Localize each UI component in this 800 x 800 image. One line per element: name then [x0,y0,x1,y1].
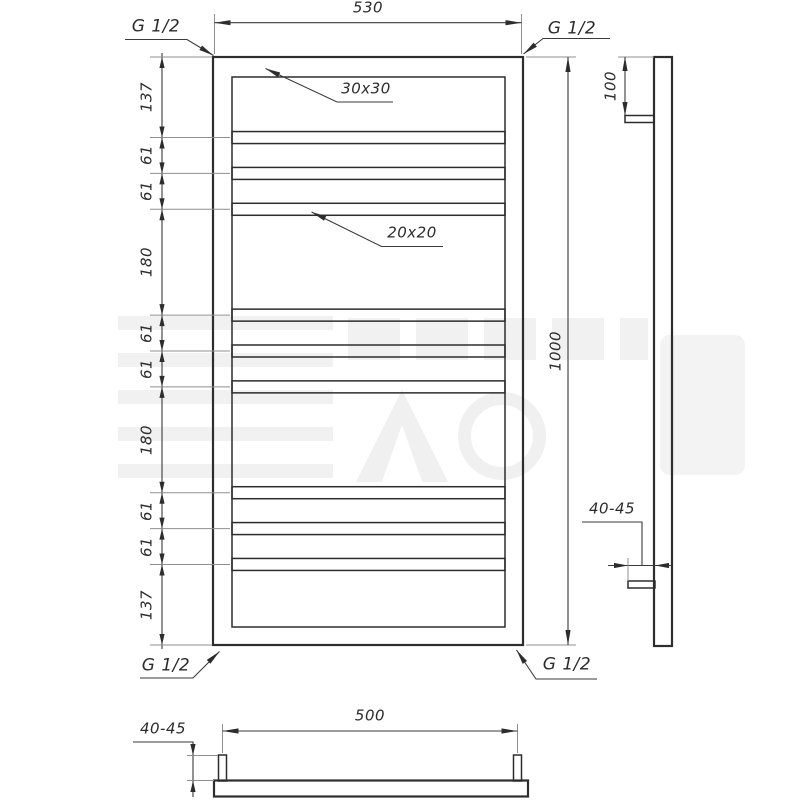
chain-dim-label: 61 [140,181,155,201]
chain-arrow [159,173,164,184]
rung-layer [232,132,505,571]
chain-arrow [159,315,164,326]
dim-label-530: 530 [353,1,383,16]
chain-arrow [159,198,164,209]
thread-label-bottom-right: G 1/2 [543,657,591,674]
dim-label-40-45-bottom: 40-45 [140,722,186,737]
chain-dim-label: 137 [140,590,155,620]
side-view [625,57,672,646]
rung [232,487,505,499]
chain-arrow [159,304,164,315]
thread-label-bottom-left: G 1/2 [142,658,190,675]
rung [232,381,505,393]
dim-500 [223,724,518,753]
chain-arrow [159,493,164,504]
chain-dim-label: 180 [140,247,155,277]
chain-arrow [159,482,164,493]
dim-530 [215,14,522,54]
rung [232,558,505,570]
chain-arrow [159,340,164,351]
chain-dim-label: 61 [140,145,155,165]
front-view [213,57,523,645]
chain-arrow [159,138,164,149]
frame-profile-label: 30x30 [341,82,391,97]
chain-dim-label: 61 [140,501,155,521]
dim-40-45-side [582,522,672,581]
chain-arrow [159,162,164,173]
rung [232,167,505,179]
dim-label-100: 100 [604,71,619,101]
chain-arrow [159,376,164,387]
chain-arrow [159,553,164,564]
thread-label-top-right: G 1/2 [548,21,596,38]
chain-arrow [159,564,164,575]
chain-dim-label: 61 [140,359,155,379]
drawing-linework [0,0,800,800]
chain-arrow [159,387,164,398]
chain-arrow [159,351,164,362]
rung-profile-label: 20x20 [387,226,437,241]
dim-label-1000: 1000 [549,331,564,371]
chain-arrow [159,529,164,540]
chain-dim-label: 61 [140,323,155,343]
dim-label-40-45-side: 40-45 [589,502,635,517]
rung [232,345,505,357]
chain-dim-label: 61 [140,536,155,556]
rung [232,203,505,215]
rung [232,309,505,321]
chain-arrow [159,57,164,68]
dim-100 [618,57,654,116]
chain-arrow [159,634,164,645]
chain-dim-label: 180 [140,425,155,455]
rung [232,523,505,535]
bottom-view [214,755,528,797]
left-dim-chain [150,53,230,649]
chain-arrow [159,209,164,220]
towel-rail-technical-drawing: 530 1000 G 1/2 G 1/2 G 1/2 G 1/2 30x30 2… [0,0,800,800]
chain-arrow [159,518,164,529]
dim-label-500: 500 [355,709,385,724]
rung [232,132,505,144]
thread-label-top-left: G 1/2 [132,19,180,36]
thread-leaders [125,39,610,680]
dim-40-45-bottom [133,742,218,797]
chain-arrow [159,127,164,138]
chain-dim-label: 137 [140,82,155,112]
